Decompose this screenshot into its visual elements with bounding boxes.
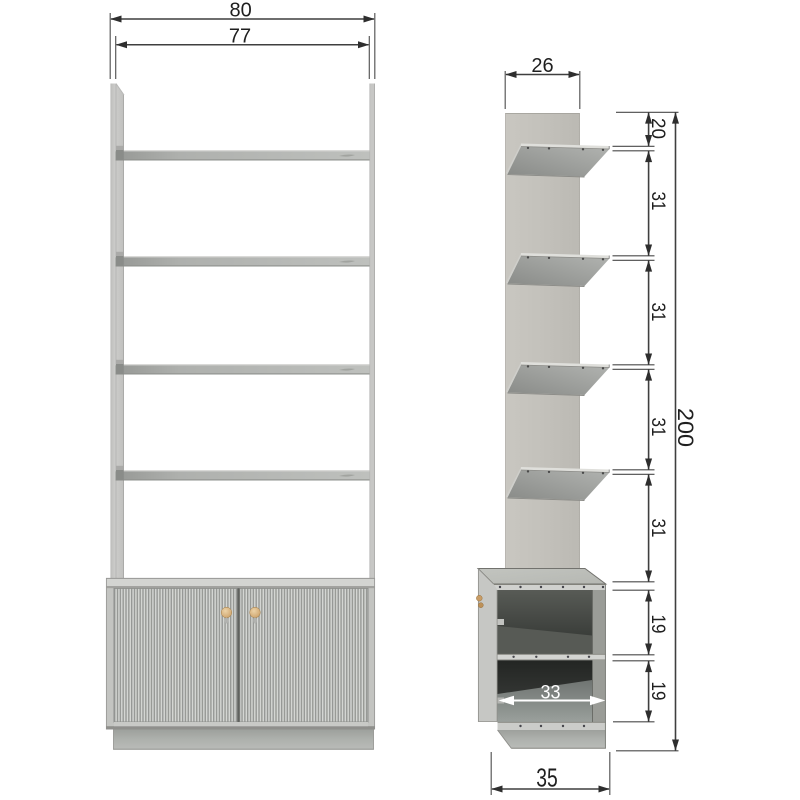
- svg-text:26: 26: [531, 55, 553, 77]
- svg-text:20: 20: [647, 118, 668, 139]
- svg-text:31: 31: [647, 192, 668, 211]
- svg-text:31: 31: [647, 303, 668, 322]
- svg-text:31: 31: [647, 519, 668, 538]
- svg-text:35: 35: [536, 763, 558, 793]
- svg-text:200: 200: [673, 408, 698, 447]
- svg-text:19: 19: [647, 615, 668, 634]
- svg-text:31: 31: [647, 418, 668, 437]
- svg-text:19: 19: [647, 682, 668, 701]
- svg-text:80: 80: [229, 0, 251, 21]
- svg-text:77: 77: [229, 25, 251, 47]
